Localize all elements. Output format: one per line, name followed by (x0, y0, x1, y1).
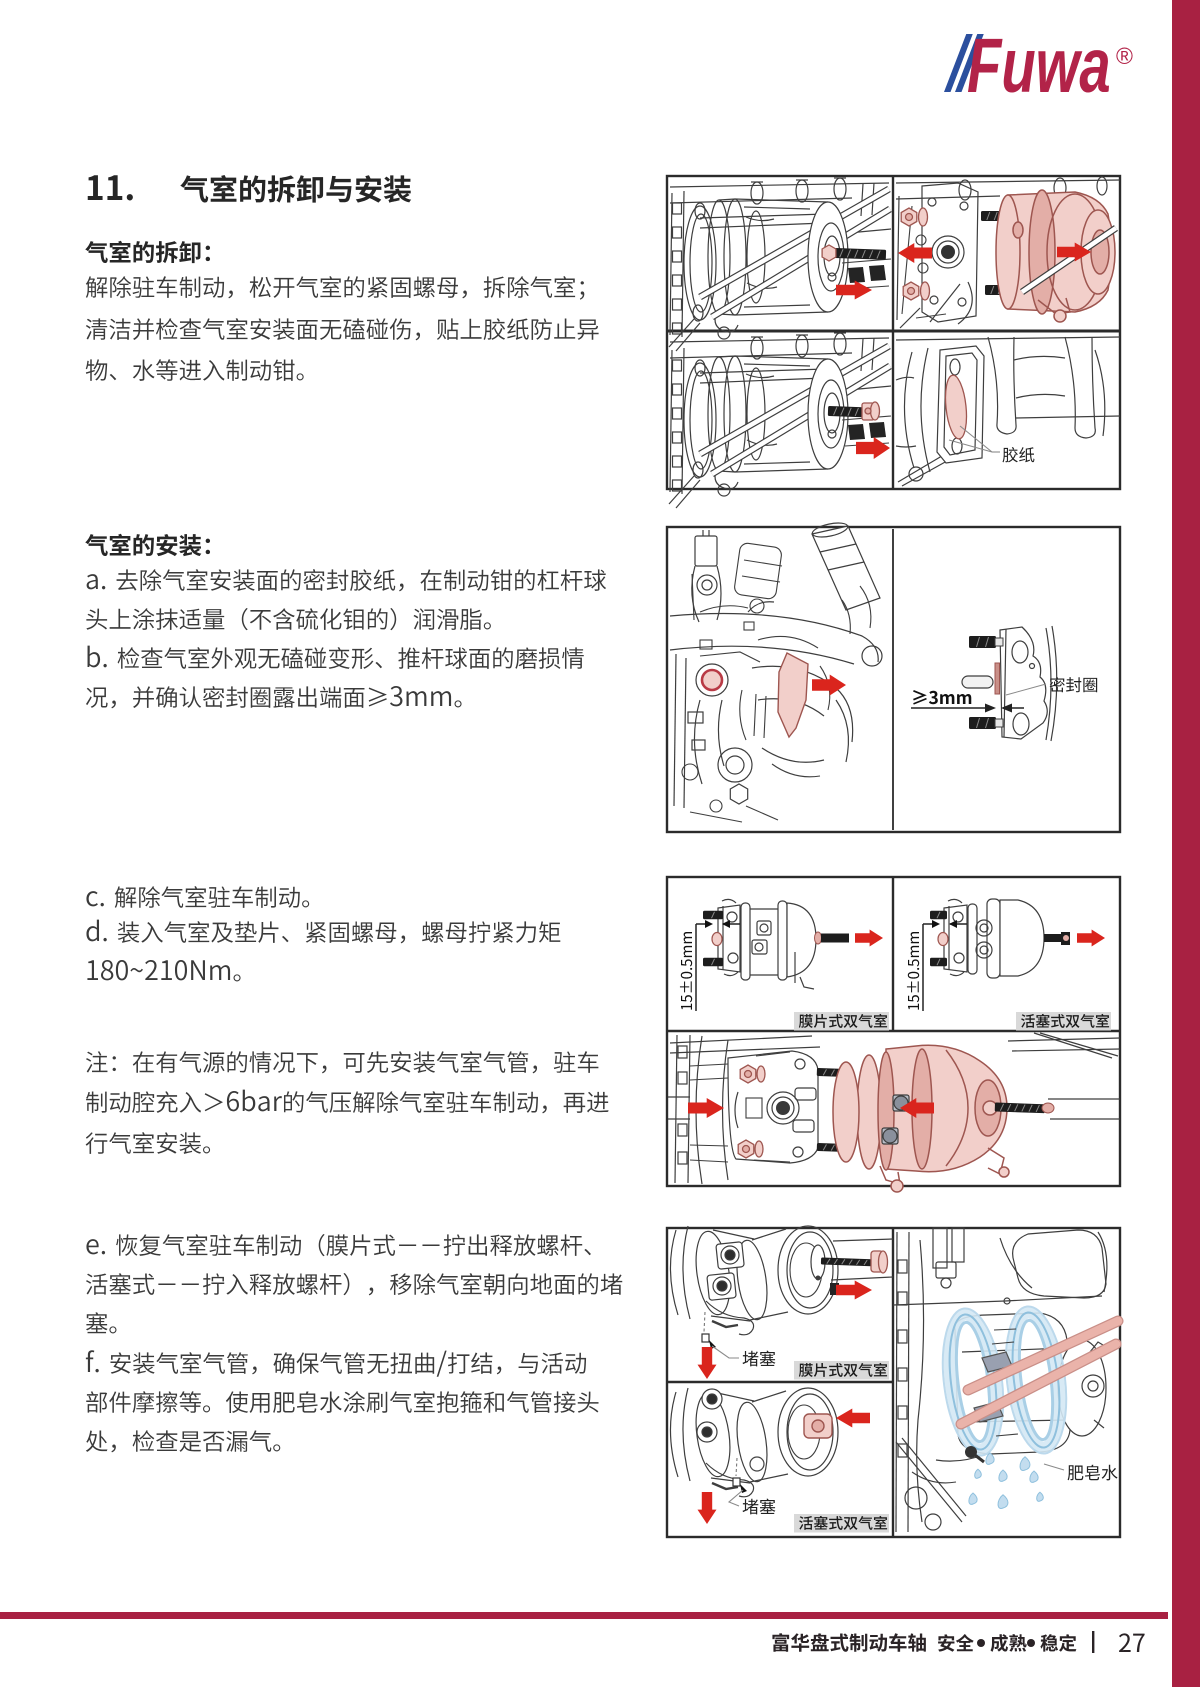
svg-text:Fuwa: Fuwa (967, 23, 1111, 109)
svg-text:®: ® (1116, 43, 1133, 69)
